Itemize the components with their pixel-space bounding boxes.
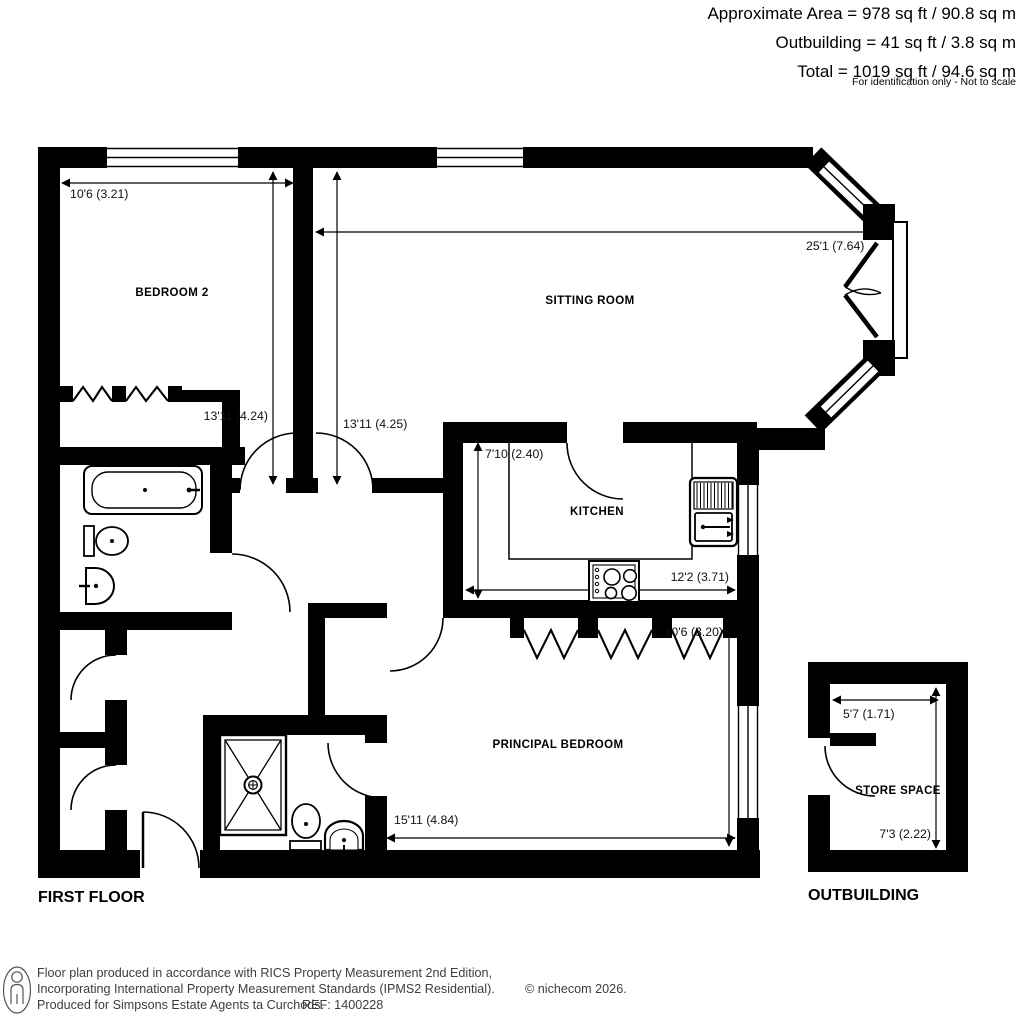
ensuite-basin-icon [325,821,363,851]
footer-line3: Produced for Simpsons Estate Agents ta C… [37,998,324,1012]
principal-wardrobe-doors [524,630,578,658]
sitting-depth-label: 13'11 (4.25) [343,417,407,431]
bedroom2-label: BEDROOM 2 [135,287,208,299]
sink-unit-icon [690,478,737,546]
principal-width-label: 15'11 (4.84) [394,813,458,827]
kitchen-label: KITCHEN [570,506,624,518]
hob-icon [589,561,639,602]
first-floor-title: FIRST FLOOR [38,889,145,906]
bathroom-fixtures [79,466,202,604]
outbuilding-title: OUTBUILDING [808,887,919,904]
outbuilding-area-text: Outbuilding = 41 sq ft / 3.8 sq m [776,33,1017,52]
bedroom2-width-label: 10'6 (3.21) [70,187,128,201]
approximate-area-text: Approximate Area = 978 sq ft / 90.8 sq m [707,4,1016,23]
principal-bedroom-door-arc [390,618,443,671]
floorplan-page: Approximate Area = 978 sq ft / 90.8 sq m… [0,0,1024,1018]
sitting-room-label: SITTING ROOM [545,295,634,307]
bedroom2-wardrobe-doors [126,387,168,401]
bathroom-door-arc [232,554,290,612]
kitchen-width-label: 12'2 (3.71) [671,570,729,584]
toilet-icon [84,526,128,556]
bedroom2-depth-label: 13'11 (4.24) [204,409,268,423]
french-door-recess [893,222,907,358]
ensuite-door-arc [328,743,383,798]
cupboard-lower-door-arc [71,765,116,810]
footer: Floor plan produced in accordance with R… [4,966,627,1013]
ensuite-fixtures [220,735,363,851]
bedroom2-window [107,147,238,168]
kitchen-door-arc [567,443,623,499]
principal-bedroom-label: PRINCIPAL BEDROOM [493,739,624,751]
bedroom2-wardrobe-doors [73,387,112,401]
ensuite-toilet-icon [290,804,321,850]
hall-door-arc [316,433,373,490]
footer-line2: Incorporating International Property Mea… [37,982,495,996]
principal-wardrobe-doors [598,630,652,658]
footer-ref: REF: 1400228 [302,998,383,1012]
sitting-width-label: 25'1 (7.64) [806,239,864,253]
person-scale-icon [4,967,31,1013]
kitchen-window [737,485,759,555]
header-area-summary: Approximate Area = 978 sq ft / 90.8 sq m… [707,4,1016,88]
kitchen-depth-label: 7'10 (2.40) [485,447,543,461]
floorplan-canvas: Approximate Area = 978 sq ft / 90.8 sq m… [0,0,1024,1018]
identification-note: For identification only - Not to scale [852,76,1016,88]
sitting-room-window [437,147,523,168]
french-doors [845,243,881,337]
bay-window [813,156,907,424]
bathtub-icon [84,466,202,514]
cupboard-upper-door-arc [71,655,116,700]
basin-icon [79,568,114,604]
store-width-label: 5'7 (1.71) [843,707,895,721]
store-space-label: STORE SPACE [855,785,941,797]
principal-bedroom-window [737,706,759,818]
shower-tray-icon [220,735,286,835]
footer-line1: Floor plan produced in accordance with R… [37,966,492,980]
store-depth-label: 7'3 (2.22) [879,827,931,841]
front-door-arc [143,812,199,868]
principal-depth-label: 10'6 (3.20) [665,625,723,639]
footer-copyright: © nichecom 2026. [525,982,627,996]
